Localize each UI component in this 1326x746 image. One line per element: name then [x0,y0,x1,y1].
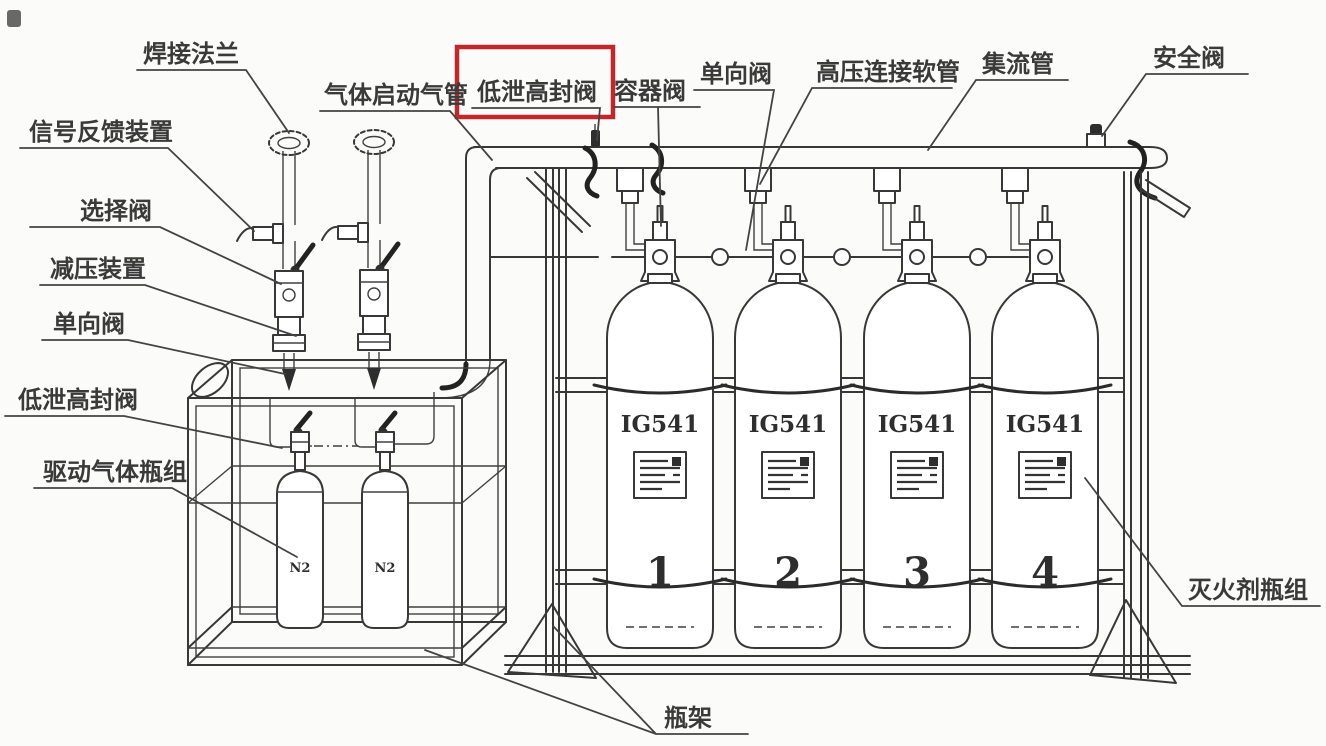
cylinder-agent-text: IG541 [1006,411,1084,438]
svg-text:灭火剂瓶组: 灭火剂瓶组 [1188,576,1308,604]
rack-floor [505,656,1190,674]
svg-text:低泄高封阀: 低泄高封阀 [476,78,597,106]
svg-text:安全阀: 安全阀 [1153,44,1225,72]
label-low-leak-valve-top: 低泄高封阀 [472,78,600,140]
riser-column-1 [237,131,313,391]
n2-text: N2 [290,561,311,576]
check-valve-device-2 [834,249,850,265]
driving-cylinder-2: N2 [362,413,408,628]
check-valve-device-1 [712,249,728,265]
n2-text: N2 [375,561,396,576]
svg-text:焊接法兰: 焊接法兰 [143,40,239,68]
svg-text:瓶架: 瓶架 [664,705,712,732]
agent-cylinder-4: IG541 4 [979,168,1111,648]
svg-text:高压连接软管: 高压连接软管 [816,58,960,86]
system-diagram: IG541 1 IG541 2 IG541 3 IG541 4 [0,0,1326,746]
left-post [546,168,566,672]
right-foot [1090,600,1176,683]
driving-cylinder-1: N2 [277,413,323,628]
svg-text:单向阀: 单向阀 [700,60,772,88]
svg-text:容器阀: 容器阀 [614,77,686,105]
cylinder-agent-text: IG541 [621,411,699,438]
label-safety-valve: 安全阀 [1102,44,1248,136]
svg-text:集流管: 集流管 [981,50,1054,78]
label-agent-cylinder-group: 灭火剂瓶组 [1085,478,1320,606]
scan-artifact [7,10,21,27]
riser-column-2 [322,130,398,390]
svg-text:低泄高封阀: 低泄高封阀 [17,386,138,414]
label-hp-hose: 高压连接软管 [760,58,960,184]
driving-gas-cage [186,356,506,665]
label-driving-gas-group: 驱动气体瓶组 [34,458,297,557]
agent-cylinder-2: IG541 2 [722,168,854,648]
agent-cylinder-3: IG541 3 [851,168,983,648]
cylinder-number: 4 [1031,549,1059,596]
low-leak-valve-top-device [591,130,600,147]
cylinder-agent-text: IG541 [749,411,827,438]
svg-text:减压装置: 减压装置 [50,256,146,283]
check-valve-device-3 [970,249,986,265]
cylinder-number: 3 [903,549,931,596]
svg-text:驱动气体瓶组: 驱动气体瓶组 [43,458,187,486]
svg-text:单向阀: 单向阀 [53,310,125,338]
svg-text:气体启动气管: 气体启动气管 [323,81,468,109]
cylinder-agent-text: IG541 [878,411,956,438]
svg-text:选择阀: 选择阀 [80,198,152,225]
label-gas-start-pipe: 气体启动气管 [320,81,492,160]
agent-cylinder-1: IG541 1 [594,168,726,648]
diagram-canvas: IG541 1 IG541 2 IG541 3 IG541 4 [0,0,1326,746]
start-gas-line [490,249,1028,265]
svg-text:信号反馈装置: 信号反馈装置 [29,118,173,146]
cylinder-number: 2 [774,549,802,596]
cylinder-number: 1 [646,549,674,596]
